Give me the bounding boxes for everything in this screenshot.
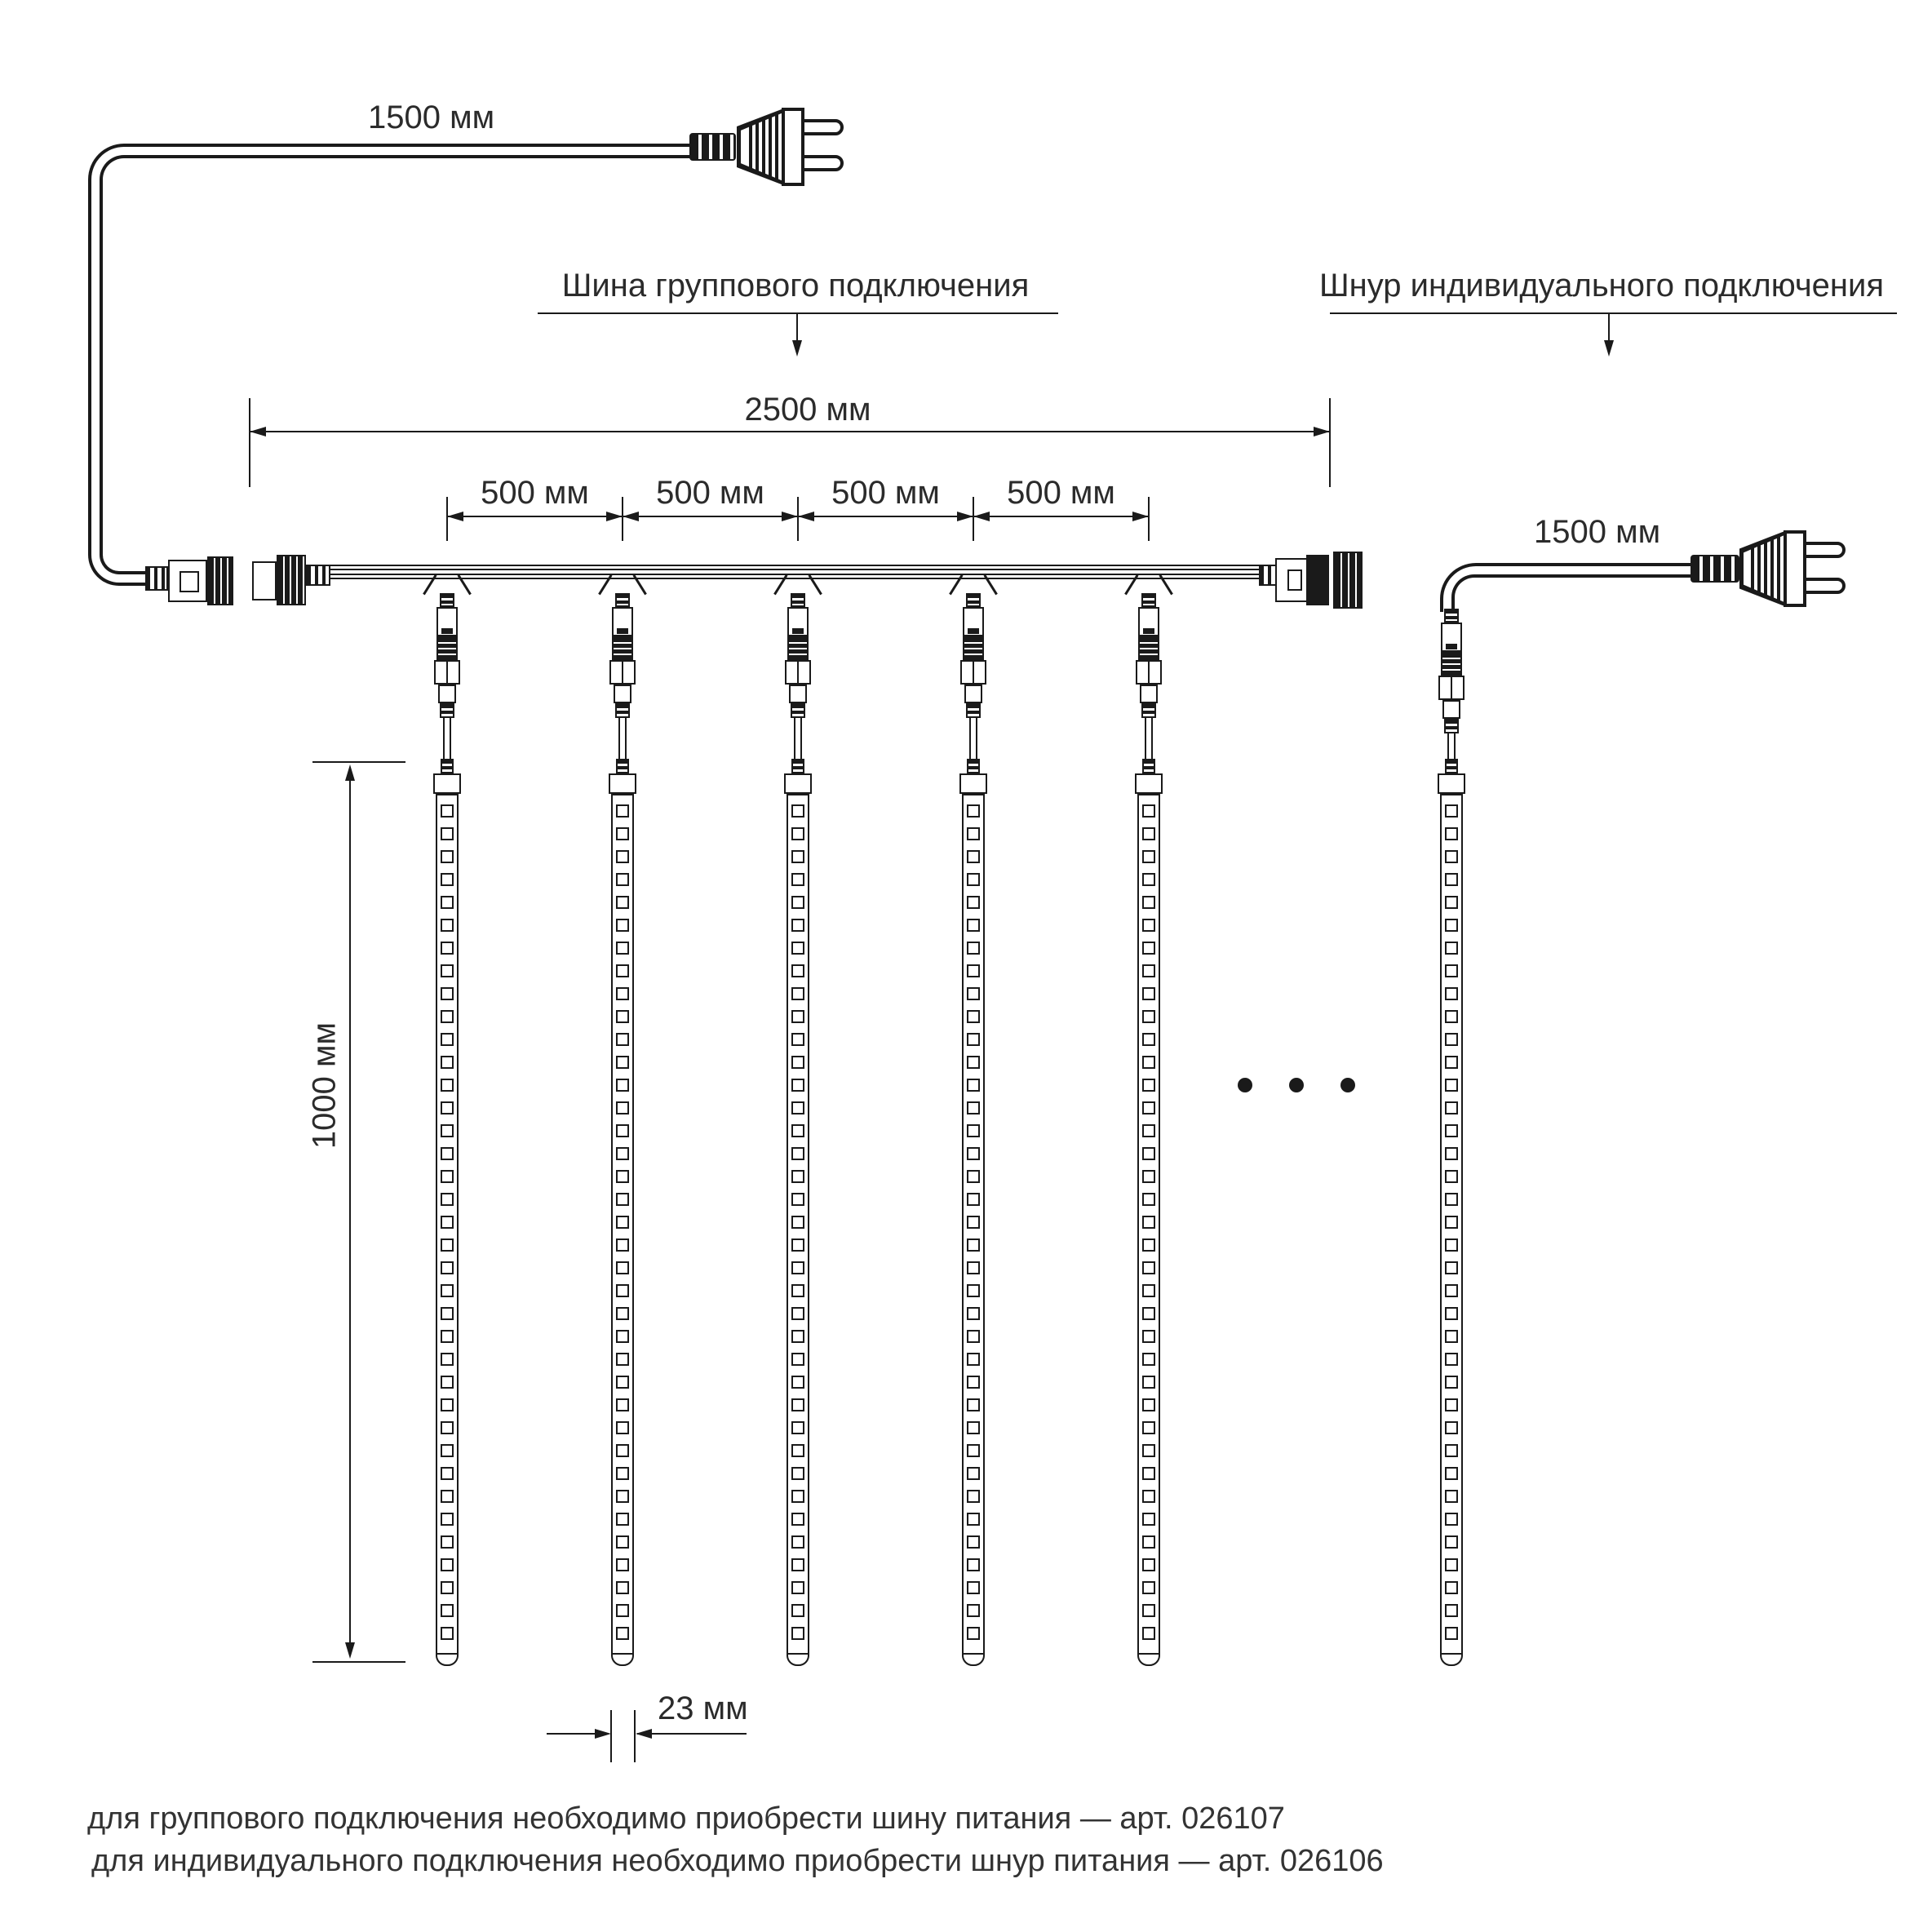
drop-wire <box>969 718 971 759</box>
led-square <box>441 1376 454 1389</box>
connector-latch <box>441 628 453 634</box>
led-square <box>441 873 454 886</box>
tube-cap-ribs <box>791 759 804 773</box>
led-square <box>441 1033 454 1046</box>
led-square <box>967 1398 980 1411</box>
led-square <box>1445 1513 1458 1526</box>
led-square <box>1142 1376 1155 1389</box>
led-square <box>967 1170 980 1183</box>
led-square <box>791 1307 804 1320</box>
led-square <box>1142 1490 1155 1503</box>
led-square <box>1142 1124 1155 1137</box>
led-square <box>616 1033 629 1046</box>
led-square <box>616 1558 629 1571</box>
tube-top-cap <box>1135 773 1163 794</box>
led-square <box>1142 1421 1155 1434</box>
led-square <box>616 827 629 840</box>
led-square <box>1445 1627 1458 1640</box>
led-square <box>967 1558 980 1571</box>
led-square <box>441 1627 454 1640</box>
tube-bottom-seam <box>788 1653 808 1655</box>
led-square <box>791 827 804 840</box>
tube-top-cap <box>959 773 987 794</box>
connector-coupler-split <box>1451 677 1452 698</box>
connector-ribs <box>440 593 454 607</box>
plug-prong <box>1803 542 1846 558</box>
led-square <box>1445 873 1458 886</box>
connector-housing <box>614 685 631 703</box>
led-square <box>1445 1558 1458 1571</box>
led-square <box>1142 1444 1155 1457</box>
led-square <box>441 1421 454 1434</box>
input-cord-length-label: 1500 мм <box>368 100 494 136</box>
led-square <box>967 1056 980 1069</box>
led-square <box>441 987 454 1000</box>
led-square <box>1142 964 1155 977</box>
led-square <box>791 919 804 932</box>
led-square <box>967 1193 980 1206</box>
led-square <box>1445 1421 1458 1434</box>
led-square <box>791 1581 804 1594</box>
individual-callout-underline <box>1330 312 1897 314</box>
led-square <box>616 1261 629 1274</box>
led-square <box>616 1581 629 1594</box>
led-square <box>1445 942 1458 955</box>
led-square <box>1142 1330 1155 1343</box>
connector-knurl <box>436 636 458 660</box>
tube-bottom-seam <box>437 1653 457 1655</box>
connector-ribs <box>615 593 630 607</box>
led-square <box>1445 1124 1458 1137</box>
led-square <box>967 1284 980 1297</box>
led-square <box>441 1558 454 1571</box>
dimension-arrowhead <box>782 512 798 521</box>
led-square <box>616 1627 629 1640</box>
plug-strain-relief <box>689 133 736 161</box>
led-square <box>441 1307 454 1320</box>
connector-ribs <box>966 593 981 607</box>
led-square <box>616 1170 629 1183</box>
led-square <box>1445 1376 1458 1389</box>
led-square <box>967 1010 980 1023</box>
led-square <box>791 1056 804 1069</box>
led-square <box>791 1330 804 1343</box>
led-square <box>967 1581 980 1594</box>
led-square <box>791 896 804 909</box>
connector-housing <box>438 685 456 703</box>
led-square <box>1142 850 1155 863</box>
led-square <box>967 1444 980 1457</box>
led-square <box>791 942 804 955</box>
led-square <box>1142 1353 1155 1366</box>
led-square <box>791 1101 804 1114</box>
led-square <box>1142 1627 1155 1640</box>
connector-latch <box>968 628 979 634</box>
led-square <box>1445 1490 1458 1503</box>
led-square <box>616 1307 629 1320</box>
led-square <box>441 1193 454 1206</box>
led-square <box>1445 1604 1458 1617</box>
bus-callout-arrowhead <box>792 340 802 357</box>
led-square <box>1445 1398 1458 1411</box>
led-square <box>1445 1056 1458 1069</box>
led-square <box>1142 942 1155 955</box>
led-square <box>967 873 980 886</box>
tube-bottom-seam <box>613 1653 632 1655</box>
drop-wire <box>976 718 977 759</box>
dimension-arrowhead <box>1132 512 1149 521</box>
drop-wire <box>450 718 451 759</box>
led-square <box>791 987 804 1000</box>
led-square <box>441 1398 454 1411</box>
led-square <box>441 1330 454 1343</box>
led-square <box>1142 1284 1155 1297</box>
tube-cap-ribs <box>967 759 980 773</box>
connector-ribs <box>615 703 630 718</box>
segment-length-label: 500 мм <box>481 475 589 512</box>
led-square <box>1142 1079 1155 1092</box>
led-square <box>616 1376 629 1389</box>
drop-wire <box>800 718 802 759</box>
connector-knurl <box>787 636 809 660</box>
tube-width-label: 23 мм <box>658 1690 748 1727</box>
led-square <box>791 1216 804 1229</box>
connector-ribs <box>791 703 805 718</box>
led-square <box>616 1444 629 1457</box>
segment-length-label: 500 мм <box>831 475 940 512</box>
plug-prong <box>801 119 844 135</box>
led-square <box>616 873 629 886</box>
led-square <box>441 1444 454 1457</box>
led-square <box>441 896 454 909</box>
led-square <box>1445 896 1458 909</box>
led-square <box>1142 1398 1155 1411</box>
led-square <box>441 850 454 863</box>
led-square <box>616 804 629 818</box>
led-square <box>967 964 980 977</box>
led-square <box>1142 827 1155 840</box>
plug-prong <box>1803 578 1846 594</box>
led-square <box>616 987 629 1000</box>
led-square <box>616 1056 629 1069</box>
led-square <box>1445 1444 1458 1457</box>
led-square <box>967 1467 980 1480</box>
tube-top-cap <box>433 773 461 794</box>
ellipsis-dot <box>1340 1078 1355 1092</box>
led-square <box>1445 1216 1458 1229</box>
led-square <box>791 1010 804 1023</box>
led-square <box>967 1307 980 1320</box>
led-square <box>791 1376 804 1389</box>
led-square <box>967 1124 980 1137</box>
led-square <box>616 850 629 863</box>
wiring-diagram: 1500 мм Шина группового подключения Шнур… <box>0 0 1932 1932</box>
led-square <box>967 1101 980 1114</box>
led-square <box>791 1513 804 1526</box>
connector-coupler-split <box>973 662 974 683</box>
drop-wire <box>794 718 795 759</box>
led-square <box>1445 1147 1458 1160</box>
connector-latch <box>617 628 628 634</box>
led-square <box>616 1421 629 1434</box>
led-square <box>441 1604 454 1617</box>
connector-coupler-split <box>797 662 799 683</box>
led-square <box>791 1467 804 1480</box>
led-square <box>616 1239 629 1252</box>
connector-coupler-split <box>622 662 623 683</box>
connector-ribs <box>791 593 805 607</box>
led-square <box>616 1467 629 1480</box>
led-square <box>1445 1284 1458 1297</box>
tube-top-cap <box>609 773 636 794</box>
segment-length-label: 500 мм <box>1007 475 1115 512</box>
led-square <box>441 1284 454 1297</box>
led-square <box>967 1033 980 1046</box>
tube-top-cap <box>784 773 812 794</box>
led-square <box>791 1239 804 1252</box>
led-square <box>791 873 804 886</box>
led-square <box>1445 919 1458 932</box>
led-square <box>1142 1239 1155 1252</box>
led-square <box>1142 1147 1155 1160</box>
plug-prong <box>801 155 844 171</box>
led-square <box>1445 1033 1458 1046</box>
connector-latch <box>792 628 804 634</box>
led-square <box>616 919 629 932</box>
dimension-segment-line <box>447 516 623 517</box>
led-square <box>441 1535 454 1549</box>
led-square <box>441 804 454 818</box>
led-square <box>967 1147 980 1160</box>
connector-knurl <box>1441 652 1462 676</box>
connector-ribs <box>440 703 454 718</box>
led-square <box>967 850 980 863</box>
cord-bend <box>100 155 186 241</box>
led-square <box>967 1353 980 1366</box>
individual-callout-label: Шнур индивидуального подключения <box>1319 268 1884 304</box>
led-square <box>1142 1307 1155 1320</box>
bus-callout-label: Шина группового подключения <box>562 268 1029 304</box>
led-square <box>1445 1467 1458 1480</box>
led-square <box>967 804 980 818</box>
led-square <box>791 1558 804 1571</box>
ellipsis-dot <box>1289 1078 1304 1092</box>
led-square <box>616 1124 629 1137</box>
connector-knurl <box>1138 636 1159 660</box>
led-square <box>616 1353 629 1366</box>
led-square <box>616 1193 629 1206</box>
drop-wire <box>618 718 620 759</box>
led-square <box>441 1353 454 1366</box>
led-square <box>1142 1010 1155 1023</box>
led-square <box>441 1239 454 1252</box>
led-square <box>1445 1330 1458 1343</box>
led-square <box>791 1079 804 1092</box>
led-square <box>1445 1193 1458 1206</box>
connector-coupler-split <box>1148 662 1150 683</box>
led-square <box>791 1124 804 1137</box>
tube-cap-ribs <box>1142 759 1155 773</box>
segment-length-label: 500 мм <box>656 475 764 512</box>
led-square <box>791 804 804 818</box>
led-square <box>1142 1467 1155 1480</box>
connector-knurl <box>963 636 984 660</box>
led-square <box>967 1490 980 1503</box>
led-square <box>967 1079 980 1092</box>
led-square <box>616 1216 629 1229</box>
led-square <box>1445 804 1458 818</box>
led-square <box>967 1421 980 1434</box>
led-square <box>791 1627 804 1640</box>
led-square <box>1142 1101 1155 1114</box>
led-square <box>791 964 804 977</box>
bus-length-label: 2500 мм <box>744 392 871 428</box>
led-square <box>1445 1101 1458 1114</box>
led-square <box>441 1079 454 1092</box>
led-square <box>616 1398 629 1411</box>
led-square <box>441 964 454 977</box>
led-square <box>1445 1261 1458 1274</box>
led-square <box>1445 1239 1458 1252</box>
cord-bend <box>100 530 152 574</box>
note-individual-connection: для индивидуального подключения необходи… <box>91 1844 1384 1879</box>
led-square <box>791 1261 804 1274</box>
led-square <box>616 1079 629 1092</box>
connector-ribs <box>966 703 981 718</box>
note-group-connection: для группового подключения необходимо пр… <box>87 1801 1285 1837</box>
connector-housing <box>964 685 982 703</box>
led-square <box>441 1101 454 1114</box>
connector-ribs <box>1141 593 1156 607</box>
connector-housing <box>1442 700 1460 719</box>
led-square <box>791 1444 804 1457</box>
tube-cap-ribs <box>616 759 629 773</box>
led-square <box>1142 896 1155 909</box>
led-square <box>791 1147 804 1160</box>
led-square <box>1142 919 1155 932</box>
led-square <box>1445 827 1458 840</box>
led-square <box>616 942 629 955</box>
led-square <box>967 1376 980 1389</box>
plug-strain-relief <box>1690 555 1739 583</box>
led-square <box>1142 1558 1155 1571</box>
led-square <box>616 896 629 909</box>
led-square <box>616 1101 629 1114</box>
tube-bottom-seam <box>964 1653 983 1655</box>
dimension-segment-line <box>623 516 798 517</box>
led-square <box>967 1513 980 1526</box>
dimension-arrowhead <box>447 512 463 521</box>
connector-latch <box>1143 628 1154 634</box>
led-square <box>441 1216 454 1229</box>
drop-wire <box>1454 733 1456 759</box>
led-square <box>1445 1307 1458 1320</box>
drop-wire <box>625 718 627 759</box>
bus-callout-arrow <box>796 314 798 343</box>
connector-ribs <box>1444 609 1459 623</box>
connector-housing <box>1140 685 1158 703</box>
tube-bottom-seam <box>1442 1653 1461 1655</box>
led-square <box>791 1170 804 1183</box>
led-square <box>791 1284 804 1297</box>
led-square <box>967 1627 980 1640</box>
individual-callout-arrowhead <box>1604 340 1614 357</box>
dimension-arrowhead <box>798 512 814 521</box>
led-square <box>791 1604 804 1617</box>
led-square <box>791 1535 804 1549</box>
led-square <box>1445 1079 1458 1092</box>
led-square <box>1142 804 1155 818</box>
led-square <box>967 1330 980 1343</box>
led-square <box>967 896 980 909</box>
led-square <box>1142 1216 1155 1229</box>
led-square <box>791 1033 804 1046</box>
tube-drop-length-label: 1000 мм <box>307 1021 343 1151</box>
led-square <box>791 850 804 863</box>
led-square <box>1445 1353 1458 1366</box>
drop-wire <box>1145 718 1146 759</box>
connector-ribs <box>1141 703 1156 718</box>
connector-knurl <box>612 636 633 660</box>
led-square <box>616 1147 629 1160</box>
led-square <box>1445 964 1458 977</box>
tube-cap-ribs <box>1445 759 1458 773</box>
led-square <box>616 1490 629 1503</box>
led-square <box>1142 1604 1155 1617</box>
drop-wire <box>1447 733 1449 759</box>
led-square <box>967 987 980 1000</box>
led-square <box>967 1535 980 1549</box>
led-square <box>441 1170 454 1183</box>
led-square <box>441 1581 454 1594</box>
led-square <box>441 1467 454 1480</box>
led-square <box>1445 850 1458 863</box>
led-square <box>967 827 980 840</box>
tube-bottom-seam <box>1139 1653 1159 1655</box>
led-square <box>791 1353 804 1366</box>
connector-ribs <box>1444 719 1459 733</box>
led-square <box>441 1261 454 1274</box>
dimension-arrowhead <box>957 512 973 521</box>
led-square <box>1142 1581 1155 1594</box>
tube-top-cap <box>1438 773 1465 794</box>
led-square <box>441 1124 454 1137</box>
led-square <box>1445 1581 1458 1594</box>
led-square <box>616 1010 629 1023</box>
led-square <box>791 1421 804 1434</box>
led-square <box>1142 1033 1155 1046</box>
ellipsis-dot <box>1238 1078 1252 1092</box>
tube-cap-ribs <box>441 759 454 773</box>
led-square <box>441 942 454 955</box>
led-square <box>441 1490 454 1503</box>
led-square <box>441 827 454 840</box>
led-square <box>1445 1010 1458 1023</box>
led-square <box>791 1398 804 1411</box>
led-square <box>441 1513 454 1526</box>
led-square <box>1142 1170 1155 1183</box>
led-square <box>967 942 980 955</box>
connector-latch <box>1446 644 1457 649</box>
led-square <box>441 919 454 932</box>
dimension-arrowhead <box>623 512 639 521</box>
individual-cord-length-label: 1500 мм <box>1534 514 1660 551</box>
drop-wire <box>443 718 445 759</box>
led-square <box>1142 1193 1155 1206</box>
led-square <box>967 1216 980 1229</box>
led-square <box>1142 1513 1155 1526</box>
connector-coupler-split <box>446 662 448 683</box>
